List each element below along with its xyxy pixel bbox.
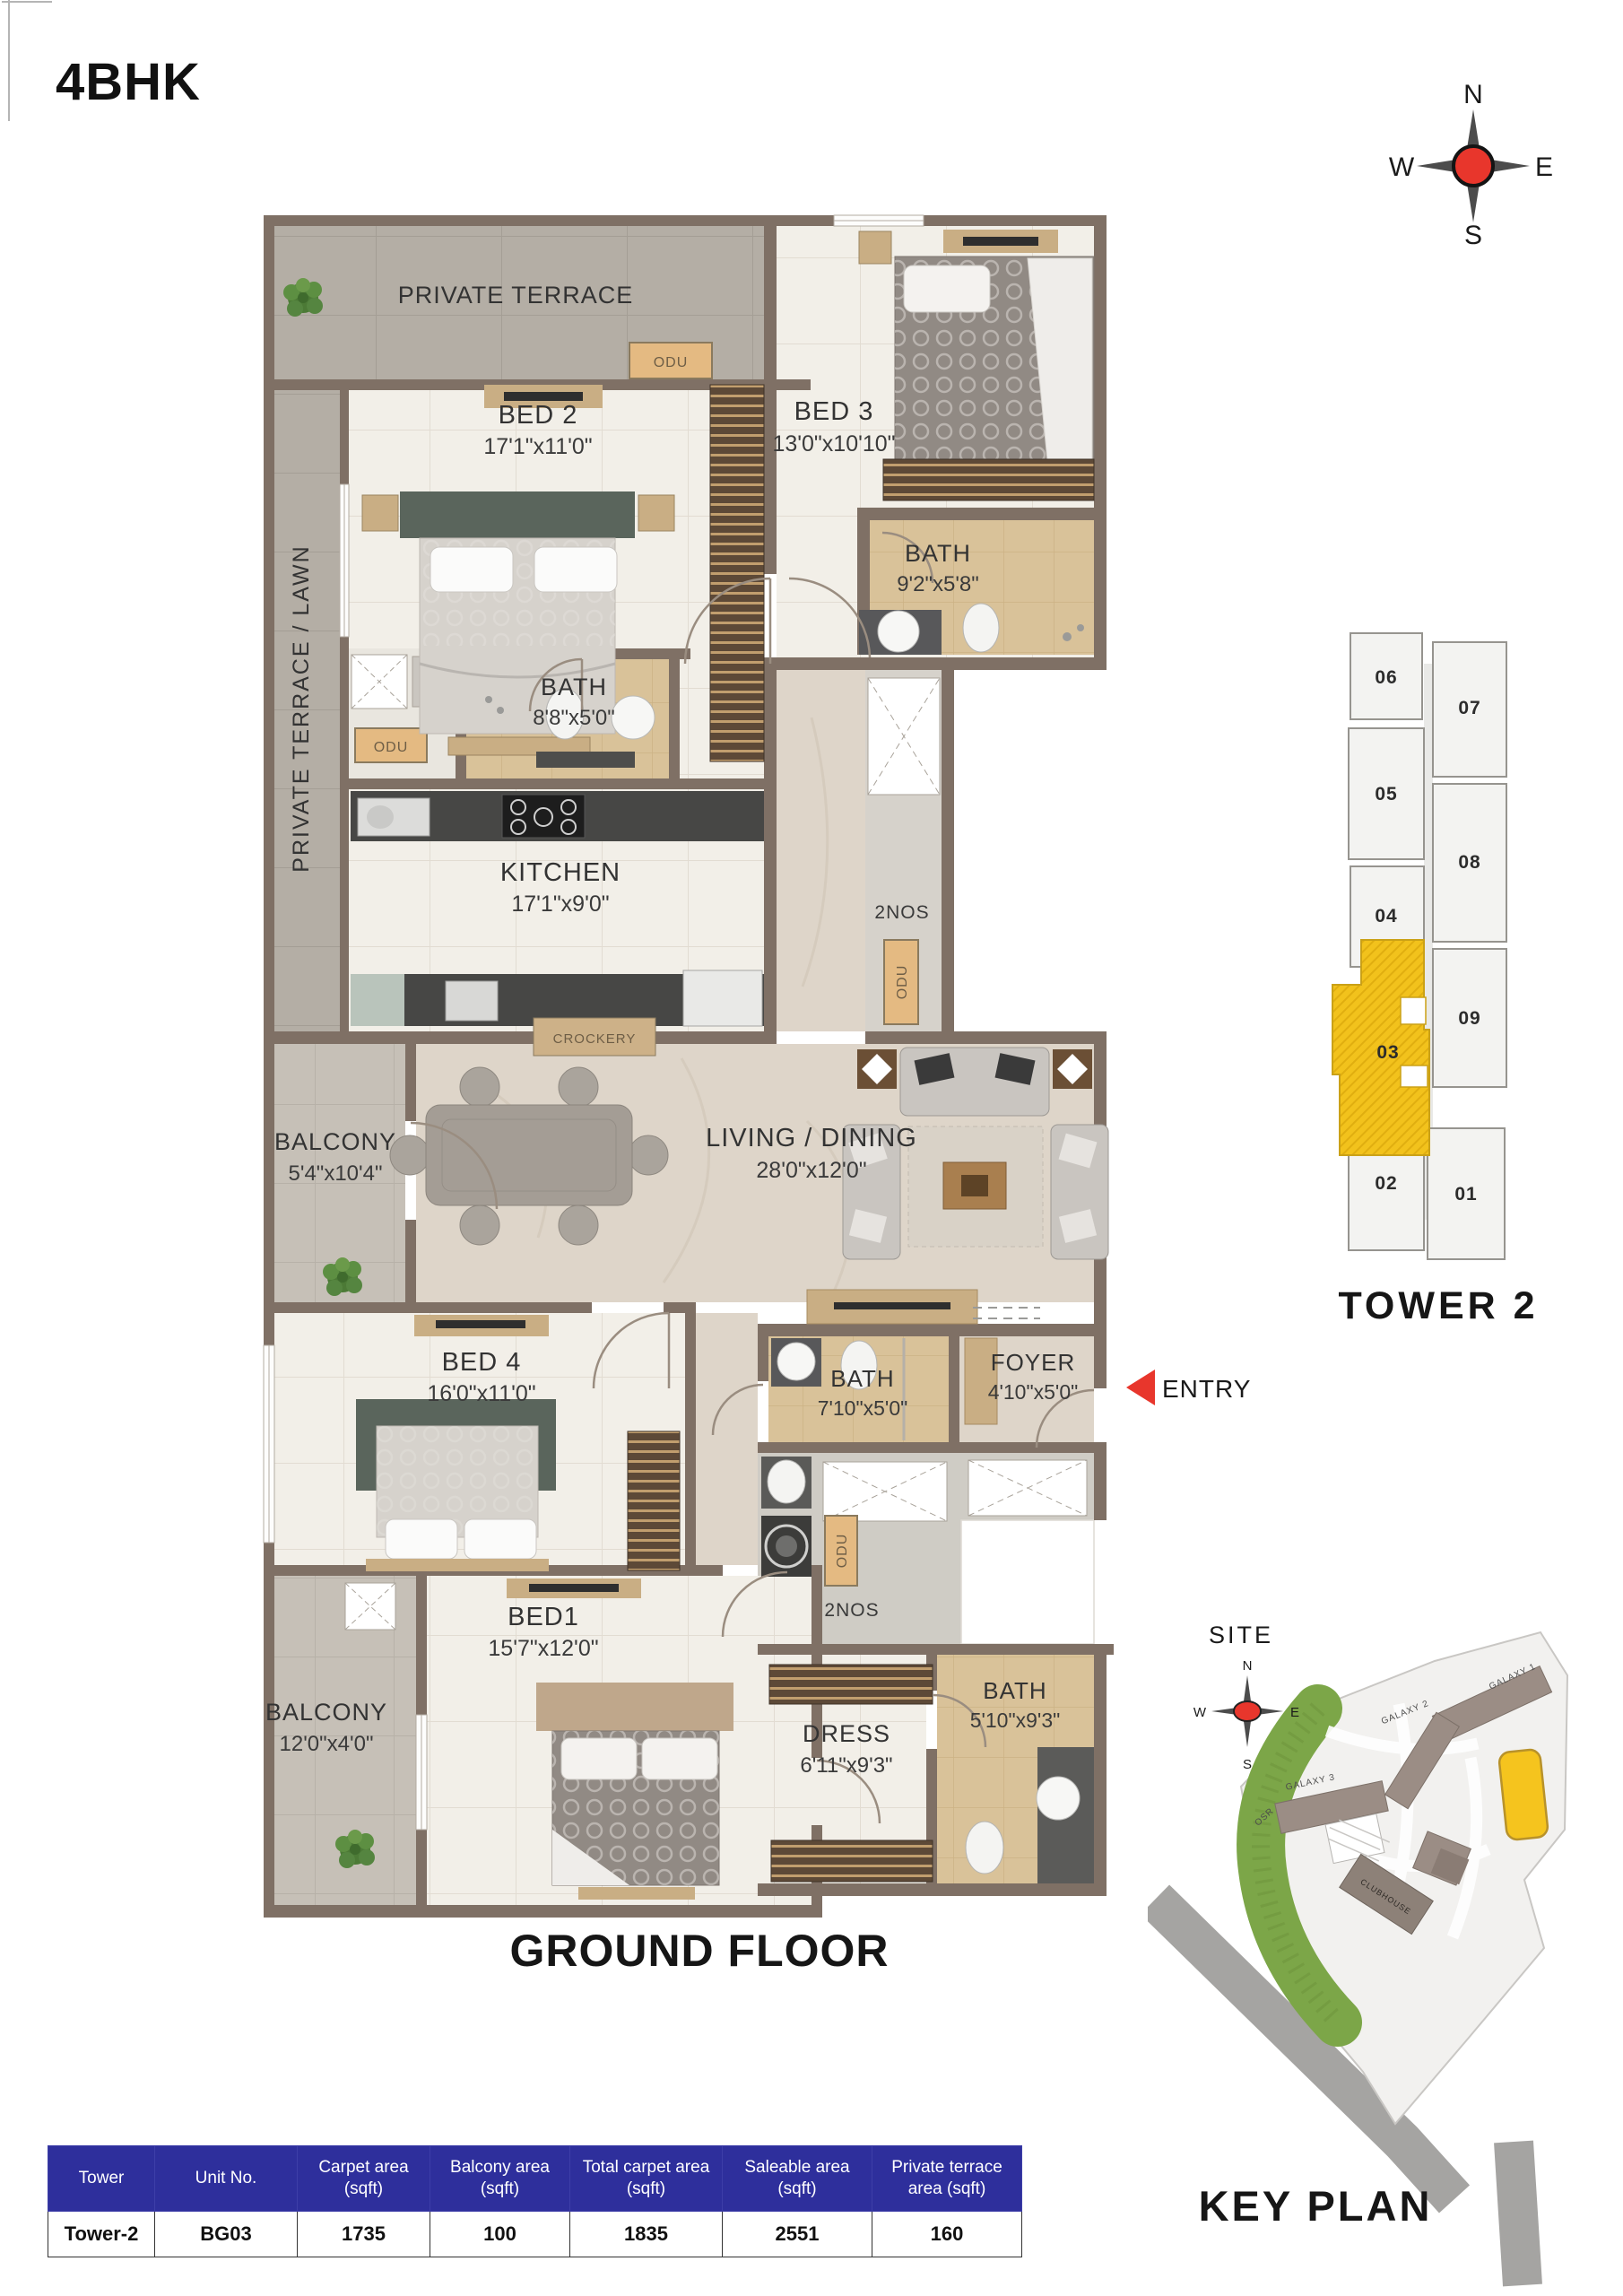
basin-icon bbox=[878, 611, 919, 652]
svg-text:ODU: ODU bbox=[835, 1534, 850, 1569]
bath-bed2-label: BATH bbox=[541, 674, 607, 700]
bed1-size: 15'7"x12'0" bbox=[488, 1636, 598, 1661]
basin-icon bbox=[612, 696, 655, 739]
shaft-icon bbox=[352, 655, 407, 709]
sink-icon bbox=[446, 981, 498, 1021]
entry-marker: ENTRY bbox=[1126, 1370, 1251, 1405]
unit-label-06: 06 bbox=[1375, 667, 1397, 688]
entry-arrow-icon bbox=[1126, 1370, 1155, 1405]
shaft-icon bbox=[868, 678, 940, 795]
unit-label-07: 07 bbox=[1458, 698, 1480, 718]
svg-text:E: E bbox=[1290, 1705, 1299, 1720]
odu-box: ODU bbox=[629, 343, 712, 378]
entry-label: ENTRY bbox=[1162, 1375, 1251, 1403]
bath-bed1-size: 5'10"x9'3" bbox=[970, 1709, 1061, 1732]
inner-passage-floor bbox=[696, 1313, 758, 1565]
bath-bed3-label: BATH bbox=[905, 540, 971, 567]
col-saleable-area: Saleable area (sqft) bbox=[723, 2146, 872, 2212]
utility-appliances bbox=[761, 1457, 811, 1577]
bed-headboard bbox=[400, 491, 635, 538]
foyer-size: 4'10"x5'0" bbox=[988, 1380, 1079, 1404]
tower-title: TOWER 2 bbox=[1322, 1284, 1555, 1328]
bed1-label: BED1 bbox=[508, 1603, 579, 1631]
cell-saleable-area: 2551 bbox=[723, 2212, 872, 2257]
dining-table-icon bbox=[426, 1105, 632, 1205]
svg-text:ODU: ODU bbox=[895, 965, 910, 1000]
wc-icon bbox=[966, 1822, 1003, 1874]
window bbox=[416, 1715, 427, 1830]
svg-text:ODU: ODU bbox=[654, 355, 689, 370]
bed3-label: BED 3 bbox=[794, 397, 874, 426]
unit-label-02: 02 bbox=[1375, 1173, 1397, 1194]
col-unit-no: Unit No. bbox=[155, 2146, 298, 2212]
unit-label-01: 01 bbox=[1454, 1184, 1477, 1205]
shaft-icon bbox=[968, 1460, 1087, 1516]
window bbox=[340, 484, 349, 637]
bed3-size: 13'0"x10'10" bbox=[772, 431, 895, 457]
cell-private-terrace: 160 bbox=[872, 2212, 1022, 2257]
kitchen-label: KITCHEN bbox=[500, 858, 621, 887]
floor-title: GROUND FLOOR bbox=[498, 1925, 901, 1977]
svg-text:S: S bbox=[1243, 1757, 1252, 1772]
unit-label-09: 09 bbox=[1458, 1008, 1480, 1029]
bath-bed3-size: 9'2"x5'8" bbox=[897, 572, 979, 596]
wardrobe-icon bbox=[769, 1665, 933, 1704]
svg-text:N: N bbox=[1243, 1658, 1253, 1674]
page-title: 4BHK bbox=[56, 52, 201, 112]
bath-bed2-size: 8'8"x5'0" bbox=[533, 706, 615, 730]
keyplan-title: KEY PLAN bbox=[1185, 2181, 1445, 2231]
balcony-bed1-label: BALCONY bbox=[265, 1699, 387, 1726]
col-carpet-area: Carpet area (sqft) bbox=[298, 2146, 430, 2212]
dress-label: DRESS bbox=[803, 1720, 890, 1747]
living-label: LIVING / DINING bbox=[706, 1124, 917, 1152]
svg-text:W: W bbox=[1193, 1705, 1207, 1720]
cell-carpet-area: 1735 bbox=[298, 2212, 430, 2257]
shaft-icon bbox=[823, 1462, 947, 1521]
odu-box: ODU bbox=[825, 1516, 857, 1586]
foyer-label: FOYER bbox=[991, 1349, 1076, 1376]
wardrobe-icon bbox=[710, 385, 764, 761]
page-corner-mark bbox=[0, 0, 63, 126]
basin-icon bbox=[777, 1343, 815, 1380]
shaft-icon bbox=[345, 1583, 395, 1630]
void bbox=[961, 1520, 1094, 1644]
building-tower2-highlighted bbox=[1498, 1749, 1549, 1840]
unit-label-05: 05 bbox=[1375, 784, 1397, 804]
dress-size: 6'11"x9'3" bbox=[800, 1753, 892, 1778]
opening-dashed bbox=[973, 1308, 1040, 1318]
wc-icon bbox=[963, 604, 999, 652]
site-title: SITE bbox=[1209, 1622, 1273, 1648]
living-size: 28'0"x12'0" bbox=[756, 1158, 866, 1183]
unit-label-04: 04 bbox=[1375, 906, 1397, 926]
balcony-bed1-size: 12'0"x4'0" bbox=[280, 1732, 374, 1756]
area-table: Tower Unit No. Carpet area (sqft) Balcon… bbox=[48, 2145, 1022, 2257]
area-table-header-row: Tower Unit No. Carpet area (sqft) Balcon… bbox=[48, 2146, 1022, 2212]
sofa-set bbox=[843, 1048, 1108, 1259]
road bbox=[1514, 2142, 1523, 2285]
crockery-unit: CROCKERY bbox=[534, 1018, 655, 1056]
basin-icon bbox=[768, 1460, 805, 1503]
balcony-living-label: BALCONY bbox=[274, 1128, 396, 1155]
floor-plan: ODU ODU ODU ODU bbox=[251, 206, 1273, 1982]
kitchen-size: 17'1"x9'0" bbox=[511, 891, 609, 917]
window bbox=[264, 1345, 274, 1543]
bed-headboard bbox=[536, 1683, 733, 1731]
odu-box: ODU bbox=[884, 940, 918, 1024]
odu-box: ODU bbox=[355, 728, 427, 762]
wardrobe-icon bbox=[883, 459, 1094, 500]
compass-icon: N S W E bbox=[1363, 54, 1587, 278]
cell-total-carpet: 1835 bbox=[570, 2212, 723, 2257]
col-tower: Tower bbox=[48, 2146, 155, 2212]
passage-floor bbox=[777, 670, 865, 1031]
dishwasher-icon bbox=[683, 970, 762, 1026]
balcony-living-size: 5'4"x10'4" bbox=[289, 1161, 383, 1186]
area-table-row: Tower-2 BG03 1735 100 1835 2551 160 bbox=[48, 2212, 1022, 2257]
bed2-size: 17'1"x11'0" bbox=[483, 434, 592, 459]
two-nos-label: 2NOS bbox=[874, 902, 929, 923]
floorplan-page: 4BHK N S W E bbox=[0, 0, 1623, 2296]
unit-label-08: 08 bbox=[1458, 852, 1480, 873]
wardrobe-icon bbox=[771, 1840, 933, 1882]
svg-text:ODU: ODU bbox=[374, 740, 409, 755]
basin-icon bbox=[1037, 1777, 1080, 1820]
private-terrace-label: PRIVATE TERRACE bbox=[398, 282, 634, 309]
col-private-terrace: Private terrace area (sqft) bbox=[872, 2146, 1022, 2212]
cell-unit-no: BG03 bbox=[155, 2212, 298, 2257]
bath-common-label: BATH bbox=[830, 1365, 894, 1392]
compass-star bbox=[1417, 109, 1530, 222]
wardrobe-icon bbox=[628, 1431, 680, 1570]
cell-tower: Tower-2 bbox=[48, 2212, 155, 2257]
bed4-size: 16'0"x11'0" bbox=[427, 1381, 535, 1406]
bath-common-size: 7'10"x5'0" bbox=[818, 1396, 908, 1420]
cell-balcony-area: 100 bbox=[430, 2212, 570, 2257]
svg-text:CROCKERY: CROCKERY bbox=[553, 1031, 637, 1047]
unit-label-03: 03 bbox=[1376, 1042, 1399, 1063]
compass-n-label: N bbox=[1463, 80, 1483, 109]
bed2-label: BED 2 bbox=[499, 401, 578, 430]
bed4-label: BED 4 bbox=[442, 1348, 522, 1377]
lawn-label: PRIVATE TERRACE / LAWN bbox=[289, 544, 314, 872]
tower-diagram: 06 05 04 03 02 07 08 09 01 bbox=[1309, 610, 1623, 1283]
window bbox=[834, 215, 924, 226]
col-total-carpet: Total carpet area (sqft) bbox=[570, 2146, 723, 2212]
compass-s-label: S bbox=[1464, 221, 1482, 250]
compass-e-label: E bbox=[1535, 152, 1553, 182]
two-nos-label: 2NOS bbox=[824, 1600, 879, 1621]
compass-w-label: W bbox=[1389, 152, 1415, 182]
bath-bed1-label: BATH bbox=[983, 1677, 1046, 1704]
col-balcony-area: Balcony area (sqft) bbox=[430, 2146, 570, 2212]
